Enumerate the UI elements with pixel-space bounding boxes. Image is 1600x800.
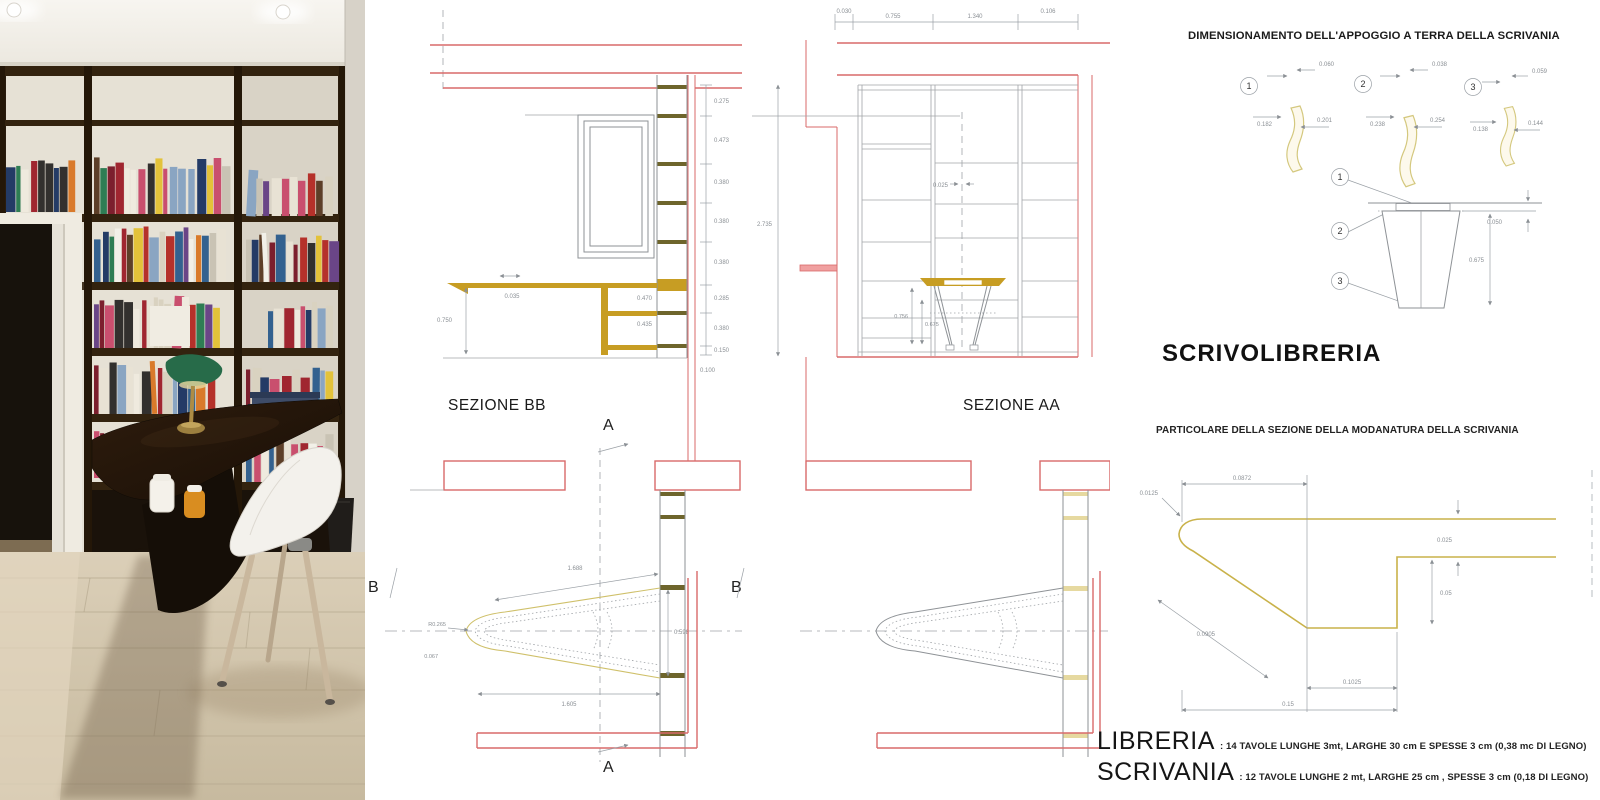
dim-profile-step: 0.1025 [1343,680,1362,686]
material-libreria: LIBRERIA : 14 TAVOLE LUNGHE 3mt, LARGHE … [1097,727,1588,756]
dim-profile-slope: 0.0905 [1197,632,1216,638]
dim-aa-total: 2.735 [757,222,773,228]
dim-r4: 0.380 [714,260,730,266]
desk-section [447,283,657,355]
material-libreria-name: LIBRERIA [1097,727,1215,756]
marker-b-right: B [731,579,742,596]
dim-aa-gap: 0.025 [933,183,949,189]
dim-r1: 0.473 [714,138,730,144]
dim-r0: 0.275 [714,99,730,105]
detail-3-dim-left: 0.138 [1473,127,1489,133]
sezione-bb-label: SEZIONE BB [448,397,546,414]
detail-1-dim-top: 0.060 [1319,62,1335,68]
dim-profile-base: 0.15 [1282,702,1294,708]
aa-desk-plan [876,588,1063,678]
marker-b-left: B [368,579,379,596]
marker-a-bottom: A [603,759,614,776]
detail-drawings: 1 0.060 0.182 0.201 2 0.038 0.238 0.254 … [1100,0,1600,800]
dim-desk-depth: 0.750 [437,318,453,324]
dim-r6: 0.380 [714,326,730,332]
modanatura-dimensions: 0.0872 0.0125 0.0905 0.1025 0.15 0.025 0… [1140,470,1592,712]
dim-aa-t0: 0.030 [836,9,852,15]
cad-sections: 0.750 0.035 0.470 0.435 0.275 0.473 0.38… [365,0,1110,800]
detail-3-dim-right: 0.144 [1528,121,1544,127]
dim-plan-radius: R0.265 [428,622,446,628]
dim-plan-diagonal: 1.688 [567,566,583,572]
door [0,213,82,562]
materials-list: LIBRERIA : 14 TAVOLE LUNGHE 3mt, LARGHE … [1097,727,1588,787]
detail-1-dim-right: 0.201 [1317,118,1333,124]
appoggio-detail-3: 3 0.059 0.138 0.144 [1465,69,1548,166]
material-scrivania: SCRIVANIA : 12 TAVOLE LUNGHE 2 mt, LARGH… [1097,758,1588,787]
aa-top-dims: 0.030 0.755 1.340 0.106 [835,9,1078,30]
callout-1: 1 [1337,172,1342,182]
sezione-aa-plan [800,461,1110,757]
dim-aa-t2: 1.340 [967,14,983,20]
modanatura-profile: 0.0872 0.0125 0.0905 0.1025 0.15 0.025 0… [1140,470,1592,712]
detail-2-dim-right: 0.254 [1430,118,1446,124]
detail-3-dim-top: 0.059 [1532,69,1548,75]
dim-inner-0: 0.470 [637,296,653,302]
aa-walls [800,40,1110,461]
dim-r2: 0.380 [714,180,730,186]
detail-1-dim-left: 0.182 [1257,122,1273,128]
marker-a-top: A [603,417,614,434]
home-office-photo [0,0,365,800]
dim-plan-length: 1.605 [561,702,577,708]
desk-plan [466,588,660,678]
dim-r5: 0.285 [714,296,730,302]
material-scrivania-spec: : 12 TAVOLE LUNGHE 2 mt, LARGHE 25 cm , … [1239,772,1588,783]
dim-profile-top: 0.0872 [1233,476,1252,482]
sezione-aa-label: SEZIONE AA [963,397,1060,414]
appoggio-detail-2: 2 0.038 0.238 0.254 [1355,62,1448,187]
aa-plan-walls [877,571,1100,748]
dim-desk-thickness: 0.035 [504,294,520,300]
dim-plan-tip: 0.067 [424,654,438,660]
detail-2-dim-top: 0.038 [1432,62,1448,68]
aa-desk [920,278,1006,350]
leg-dim-top: 0.050 [1487,220,1503,226]
material-scrivania-name: SCRIVANIA [1097,758,1234,787]
dim-profile-thickness: 0.025 [1437,538,1453,544]
callout-2: 2 [1337,226,1342,236]
window [578,115,654,258]
detail-1-number: 1 [1246,81,1251,91]
sezione-bb-elevation: 0.750 0.035 0.470 0.435 0.275 0.473 0.38… [430,10,742,461]
dim-aa-t3: 0.106 [1040,9,1056,15]
dim-aa-leg0: 0.756 [894,314,908,320]
sezione-aa-elevation: 0.030 0.755 1.340 0.106 [752,9,1110,461]
dim-profile-drop: 0.05 [1440,591,1452,597]
dim-bottom: 0.100 [700,368,716,374]
leg-elevation-detail: 1 2 3 0.050 0.675 [1332,169,1543,309]
aa-shelf-grid [858,85,1078,356]
material-libreria-spec: : 14 TAVOLE LUNGHE 3mt, LARGHE 30 cm E S… [1220,741,1587,752]
bb-dimensions: 0.750 0.035 0.470 0.435 0.275 0.473 0.38… [437,85,730,374]
bb-plan-dimensions: 1.688 1.605 R0.265 0.067 0.598 [424,566,689,708]
callout-3: 3 [1337,276,1342,286]
dim-inner-1: 0.435 [637,322,653,328]
dim-r3: 0.380 [714,219,730,225]
dim-aa-t1: 0.755 [885,14,901,20]
detail-3-number: 3 [1470,82,1475,92]
leg-dim-height: 0.675 [1469,258,1485,264]
sezione-bb-plan: A 1.688 1.605 R0.265 [368,417,744,776]
dim-aa-leg1: 0.675 [925,322,939,328]
detail-2-dim-left: 0.238 [1370,122,1386,128]
dim-r7: 0.150 [714,348,730,354]
detail-2-number: 2 [1360,79,1365,89]
appoggio-detail-1: 1 0.060 0.182 0.201 [1241,62,1335,172]
dim-profile-nose: 0.0125 [1140,491,1159,497]
